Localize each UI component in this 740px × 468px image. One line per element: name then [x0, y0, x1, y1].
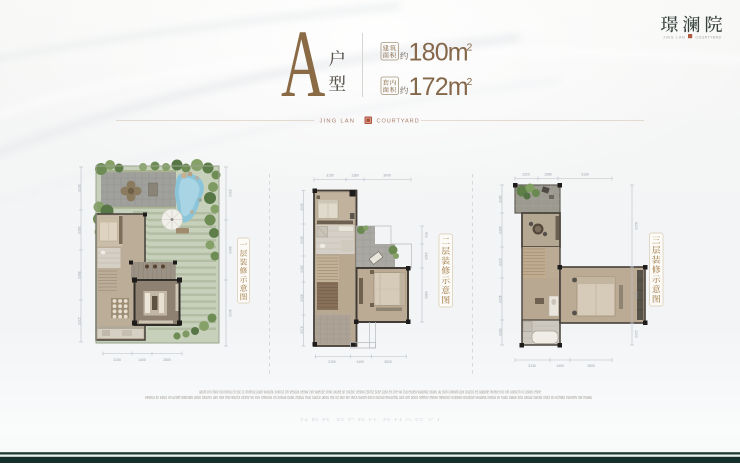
svg-text:3100: 3100 [498, 258, 502, 266]
svg-text:3105: 3105 [113, 358, 121, 362]
svg-text:A: A [281, 11, 325, 117]
svg-text:3000: 3000 [383, 174, 391, 178]
svg-text:2420: 2420 [424, 252, 428, 260]
svg-text:3900: 3900 [77, 271, 81, 279]
svg-text:1400: 1400 [356, 360, 364, 364]
svg-text:JING LAN: JING LAN [663, 35, 685, 39]
svg-text:900: 900 [424, 232, 428, 238]
svg-text:8200: 8200 [634, 222, 638, 230]
svg-text:4200: 4200 [498, 295, 502, 303]
svg-text:2: 2 [467, 41, 473, 53]
svg-text:3130: 3130 [581, 173, 589, 177]
svg-text:3130: 3130 [528, 364, 536, 368]
svg-text:2800: 2800 [163, 358, 171, 362]
svg-text:3600: 3600 [228, 246, 232, 254]
svg-text:2: 2 [467, 76, 473, 88]
svg-text:2500: 2500 [498, 328, 502, 336]
svg-text:3190: 3190 [328, 360, 336, 364]
svg-text:172m: 172m [409, 73, 468, 101]
svg-text:2100: 2100 [77, 317, 81, 325]
svg-text:2800: 2800 [498, 195, 502, 203]
svg-text:4000: 4000 [228, 309, 232, 317]
svg-text:eewnu zx ezuo vo uzom wsnzwo u: eewnu zx ezuo vo uzom wsnzwo uxvo oxsvcv… [145, 395, 592, 401]
svg-text:2200: 2200 [634, 330, 638, 338]
svg-text:3400: 3400 [498, 226, 502, 234]
svg-text:2400: 2400 [77, 226, 81, 234]
svg-text:2800: 2800 [587, 364, 595, 368]
svg-text:3000: 3000 [77, 184, 81, 192]
svg-text:COURTYARD: COURTYARD [696, 35, 722, 39]
svg-text:3100: 3100 [300, 326, 304, 334]
svg-text:JING LAN: JING LAN [320, 119, 356, 125]
svg-text:5450: 5450 [424, 291, 428, 299]
svg-text:3300: 3300 [300, 294, 304, 302]
svg-text:3300: 3300 [228, 189, 232, 197]
svg-text:1980: 1980 [544, 173, 552, 177]
svg-text:COURTYARD: COURTYARD [377, 119, 420, 125]
svg-text:5600: 5600 [634, 291, 638, 299]
svg-text:3000: 3000 [300, 203, 304, 211]
svg-text:1400: 1400 [556, 364, 564, 368]
svg-text:180m: 180m [409, 39, 468, 67]
svg-text:3000: 3000 [384, 360, 392, 364]
svg-text:2600: 2600 [300, 265, 304, 273]
svg-text:1400: 1400 [138, 358, 146, 362]
svg-text:2320: 2320 [522, 173, 530, 177]
svg-text:3195: 3195 [326, 174, 334, 178]
svg-text:1380: 1380 [351, 174, 359, 178]
svg-text:N B R D F B H R H A O Y I: N B R D F B H R H A O Y I [300, 417, 440, 422]
svg-text:3000: 3000 [300, 236, 304, 244]
